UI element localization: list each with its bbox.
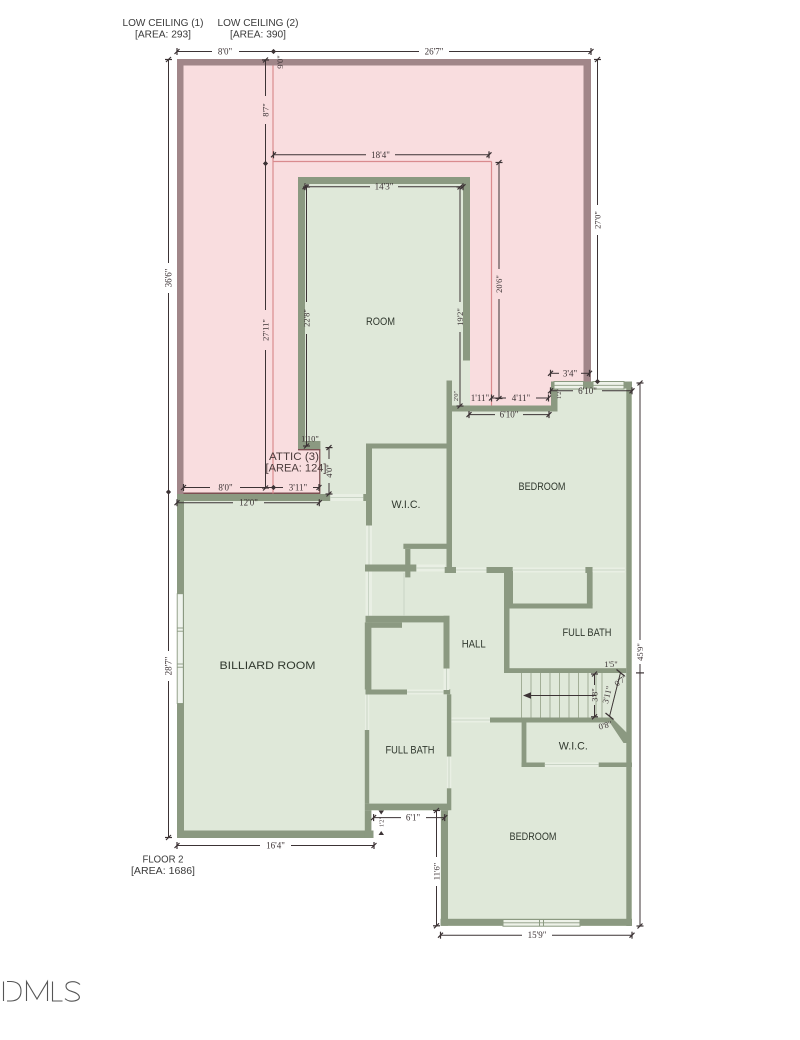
svg-text:8'0": 8'0" [218,47,233,57]
svg-text:1'5": 1'5" [604,659,618,669]
svg-text:[AREA: 390]: [AREA: 390] [230,30,286,41]
svg-text:[AREA: 293]: [AREA: 293] [135,30,191,41]
svg-text:1'2": 1'2" [379,816,386,827]
svg-text:8'7": 8'7" [261,103,271,117]
svg-text:26'7": 26'7" [425,47,444,57]
svg-text:15'9": 15'9" [528,930,547,940]
svg-text:9'0": 9'0" [275,55,285,69]
svg-text:W.I.C.: W.I.C. [559,741,588,753]
svg-text:27'11": 27'11" [261,319,271,341]
svg-text:1'2": 1'2" [556,388,563,399]
svg-text:45'9": 45'9" [635,643,645,661]
svg-text:16'4": 16'4" [266,841,285,851]
svg-text:FULL BATH: FULL BATH [563,627,612,639]
svg-text:6'10": 6'10" [578,386,597,396]
svg-text:12'0": 12'0" [239,498,258,508]
svg-text:2'0": 2'0" [453,390,460,401]
svg-text:ROOM: ROOM [366,316,395,328]
svg-text:1'11": 1'11" [471,393,490,403]
svg-text:[AREA: 1686]: [AREA: 1686] [131,866,195,877]
svg-text:[AREA: 124]: [AREA: 124] [266,463,327,475]
svg-text:8'0": 8'0" [218,483,233,493]
svg-text:36'6": 36'6" [164,268,174,287]
svg-text:11'6": 11'6" [432,863,442,880]
svg-text:27'0": 27'0" [593,211,603,229]
svg-text:BEDROOM: BEDROOM [510,831,557,843]
svg-text:18'4": 18'4" [371,150,390,160]
svg-text:3'11": 3'11" [289,483,308,493]
svg-text:BILLIARD ROOM: BILLIARD ROOM [220,660,316,672]
svg-text:ATTIC (3): ATTIC (3) [269,451,319,463]
svg-text:6'1": 6'1" [406,813,421,823]
svg-text:LOW CEILING (1): LOW CEILING (1) [123,18,204,29]
svg-text:4'11": 4'11" [512,393,531,403]
svg-text:6'10": 6'10" [500,410,519,420]
svg-text:1'10": 1'10" [301,434,319,444]
svg-text:14'3": 14'3" [375,182,394,192]
svg-text:28'7": 28'7" [164,656,174,675]
svg-text:LOW CEILING (2): LOW CEILING (2) [218,18,299,29]
svg-text:FULL BATH: FULL BATH [386,745,435,757]
svg-text:FLOOR 2: FLOOR 2 [143,855,184,866]
svg-text:W.I.C.: W.I.C. [392,499,421,511]
svg-text:HALL: HALL [462,639,486,651]
svg-text:3'8": 3'8" [590,688,600,702]
svg-text:20'6": 20'6" [494,275,504,293]
svg-text:3'4": 3'4" [563,368,578,378]
svg-text:22'8": 22'8" [302,309,312,327]
svg-text:19'2": 19'2" [455,308,465,326]
svg-text:4'0": 4'0" [324,464,334,478]
svg-text:BEDROOM: BEDROOM [519,481,566,493]
